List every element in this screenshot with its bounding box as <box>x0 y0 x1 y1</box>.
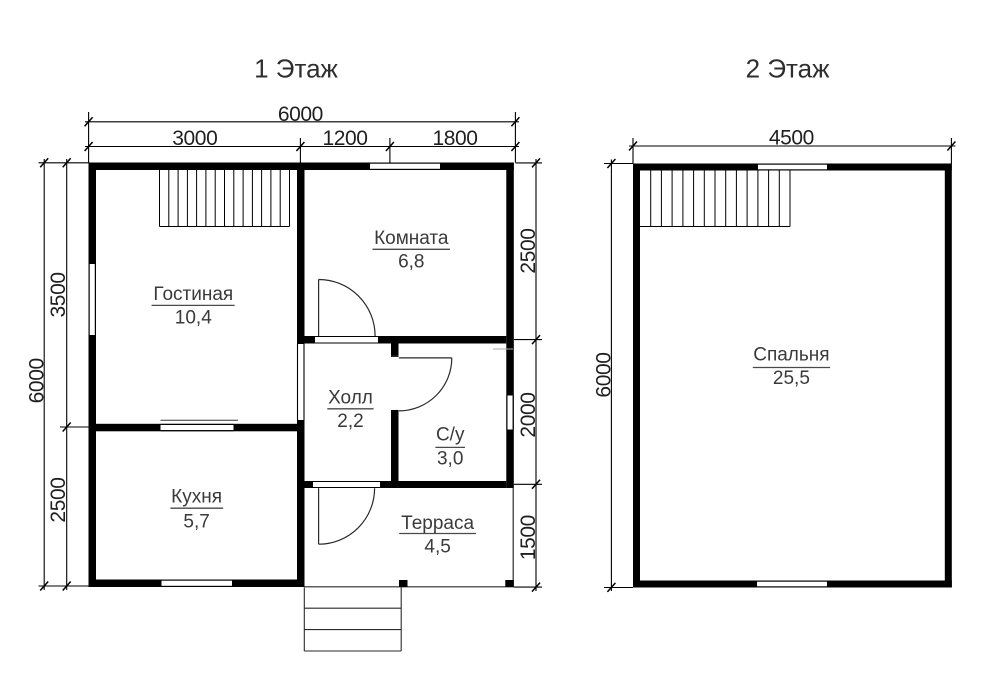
svg-text:3000: 3000 <box>172 127 217 150</box>
svg-text:6000: 6000 <box>25 358 48 403</box>
svg-text:3500: 3500 <box>47 272 70 317</box>
svg-text:1500: 1500 <box>517 515 540 560</box>
svg-text:2,2: 2,2 <box>337 411 363 432</box>
svg-text:1200: 1200 <box>322 127 367 150</box>
svg-text:Комната: Комната <box>374 228 449 249</box>
svg-text:6000: 6000 <box>592 352 615 397</box>
svg-text:2500: 2500 <box>517 228 540 273</box>
svg-text:10,4: 10,4 <box>175 307 212 328</box>
svg-text:1 Этаж: 1 Этаж <box>254 54 338 84</box>
svg-text:Терраса: Терраса <box>401 513 474 534</box>
svg-text:Кухня: Кухня <box>171 486 222 507</box>
svg-text:Холл: Холл <box>328 387 373 408</box>
svg-text:1800: 1800 <box>432 127 477 150</box>
svg-text:5,7: 5,7 <box>183 512 209 533</box>
svg-text:2500: 2500 <box>47 477 70 522</box>
svg-text:2 Этаж: 2 Этаж <box>746 54 830 84</box>
svg-text:4,5: 4,5 <box>424 537 450 558</box>
svg-text:С/у: С/у <box>436 424 465 445</box>
svg-text:Спальня: Спальня <box>753 344 829 365</box>
svg-text:25,5: 25,5 <box>773 368 810 389</box>
svg-text:2000: 2000 <box>517 392 540 437</box>
svg-text:4500: 4500 <box>769 126 814 149</box>
svg-text:6,8: 6,8 <box>398 251 424 272</box>
svg-text:Гостиная: Гостиная <box>153 284 233 305</box>
svg-text:3,0: 3,0 <box>437 449 463 470</box>
svg-text:6000: 6000 <box>278 103 323 126</box>
